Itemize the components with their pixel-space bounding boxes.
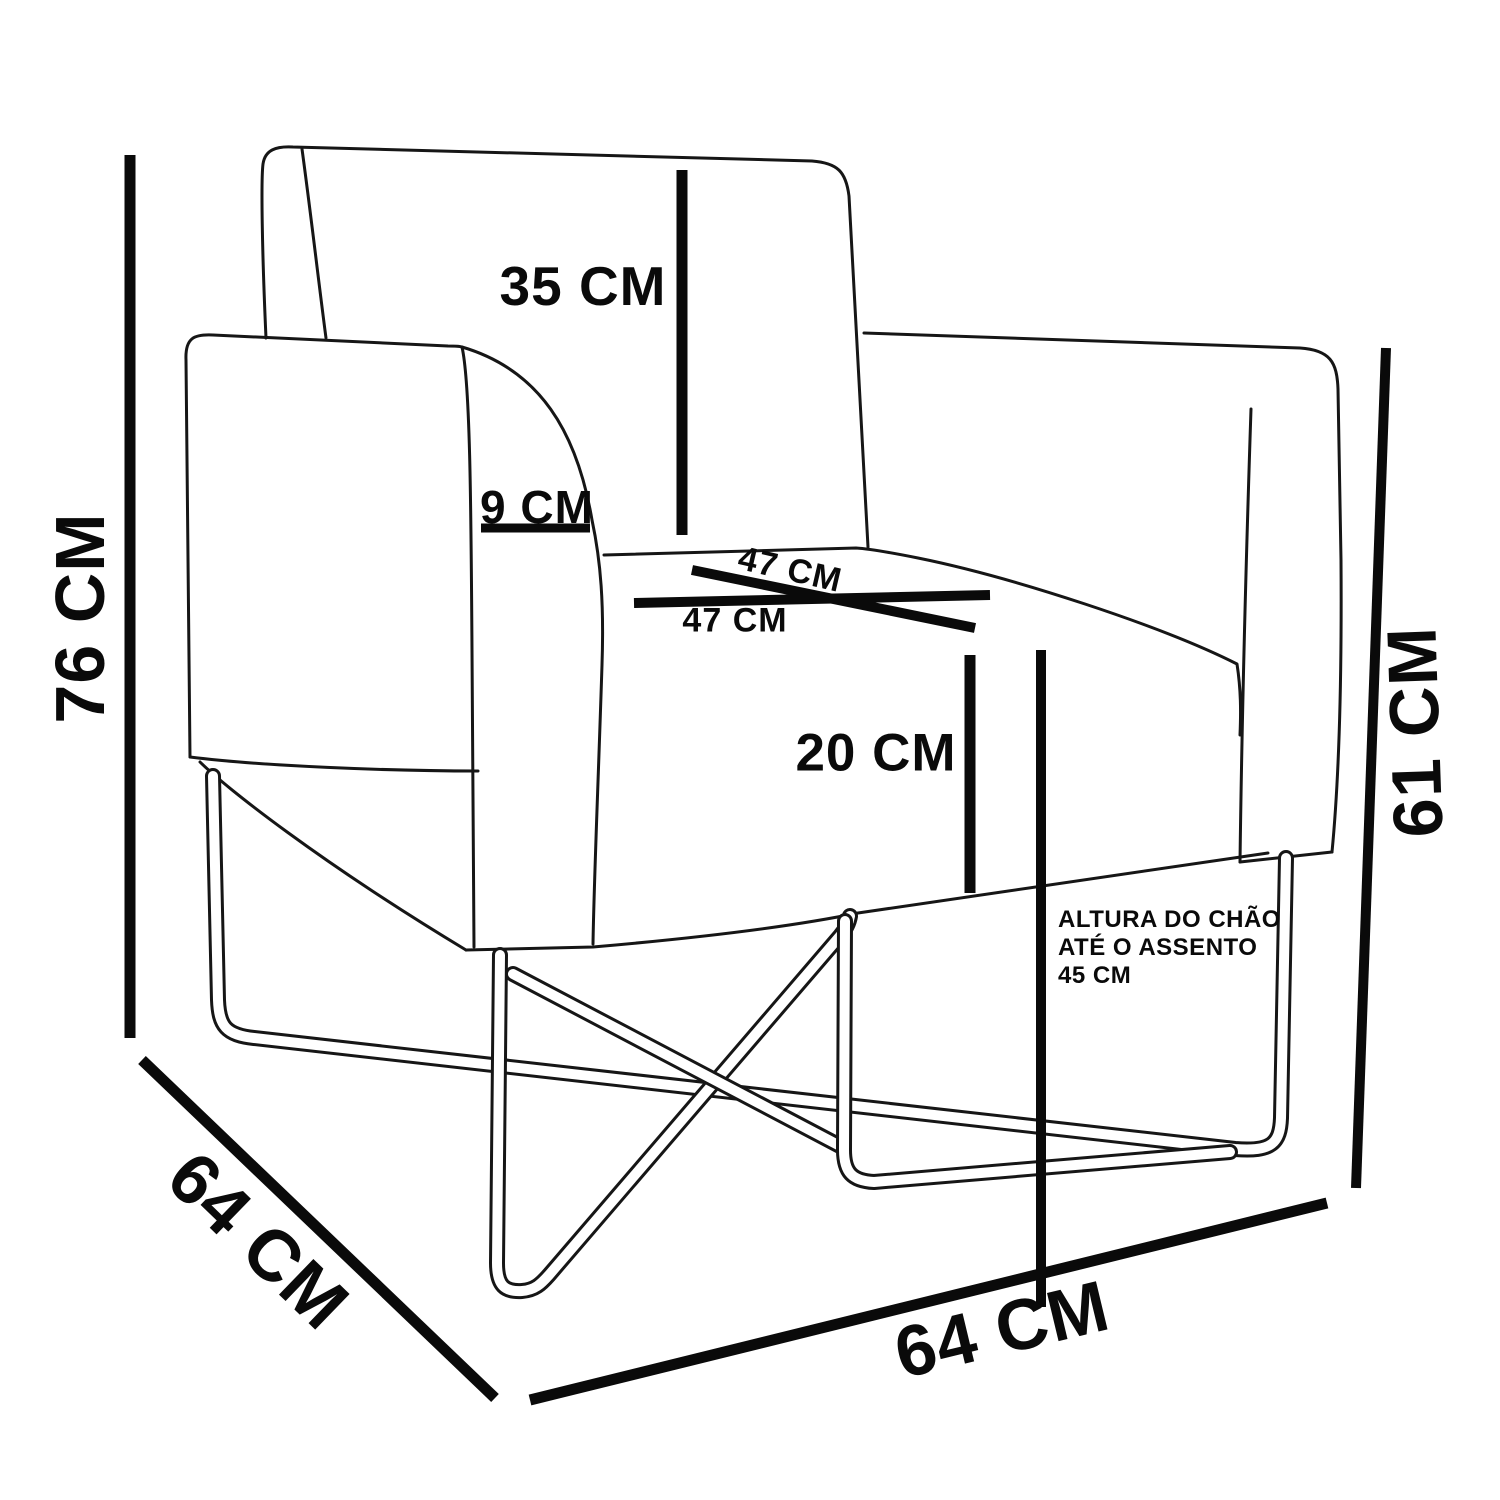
floor-to-seat-note: ALTURA DO CHÃO ATÉ O ASSENTO 45 CM <box>1058 906 1281 990</box>
metal-base-frame <box>213 776 1286 1291</box>
label-backrest-height: 35 CM <box>500 254 667 318</box>
floor-to-seat-note-line3: 45 CM <box>1058 962 1281 990</box>
left-armrest-outline <box>186 335 462 757</box>
label-total-height: 76 CM <box>40 512 120 723</box>
right-armrest-crease <box>1240 409 1251 862</box>
diagram-canvas <box>0 0 1500 1500</box>
label-seat-width: 47 CM <box>682 602 787 641</box>
left-armrest-crease <box>462 347 474 947</box>
floor-to-seat-note-line1: ALTURA DO CHÃO <box>1058 906 1281 934</box>
floor-to-seat-note-line2: ATÉ O ASSENTO <box>1058 934 1281 962</box>
dimension-lines <box>130 155 1386 1400</box>
label-cushion-height: 20 CM <box>795 723 956 784</box>
left-armrest-bottom-edge <box>190 757 478 771</box>
dimension-diagram: 76 CM 35 CM 9 CM 47 CM 47 CM 20 CM 61 CM… <box>0 0 1500 1500</box>
seat-base-left-edge <box>200 762 466 950</box>
backrest-side-face-divider <box>302 149 326 338</box>
label-arm-height: 61 CM <box>1371 625 1458 839</box>
left-armrest-inner-edge <box>462 347 603 944</box>
label-armrest-thickness: 9 CM <box>480 480 594 534</box>
